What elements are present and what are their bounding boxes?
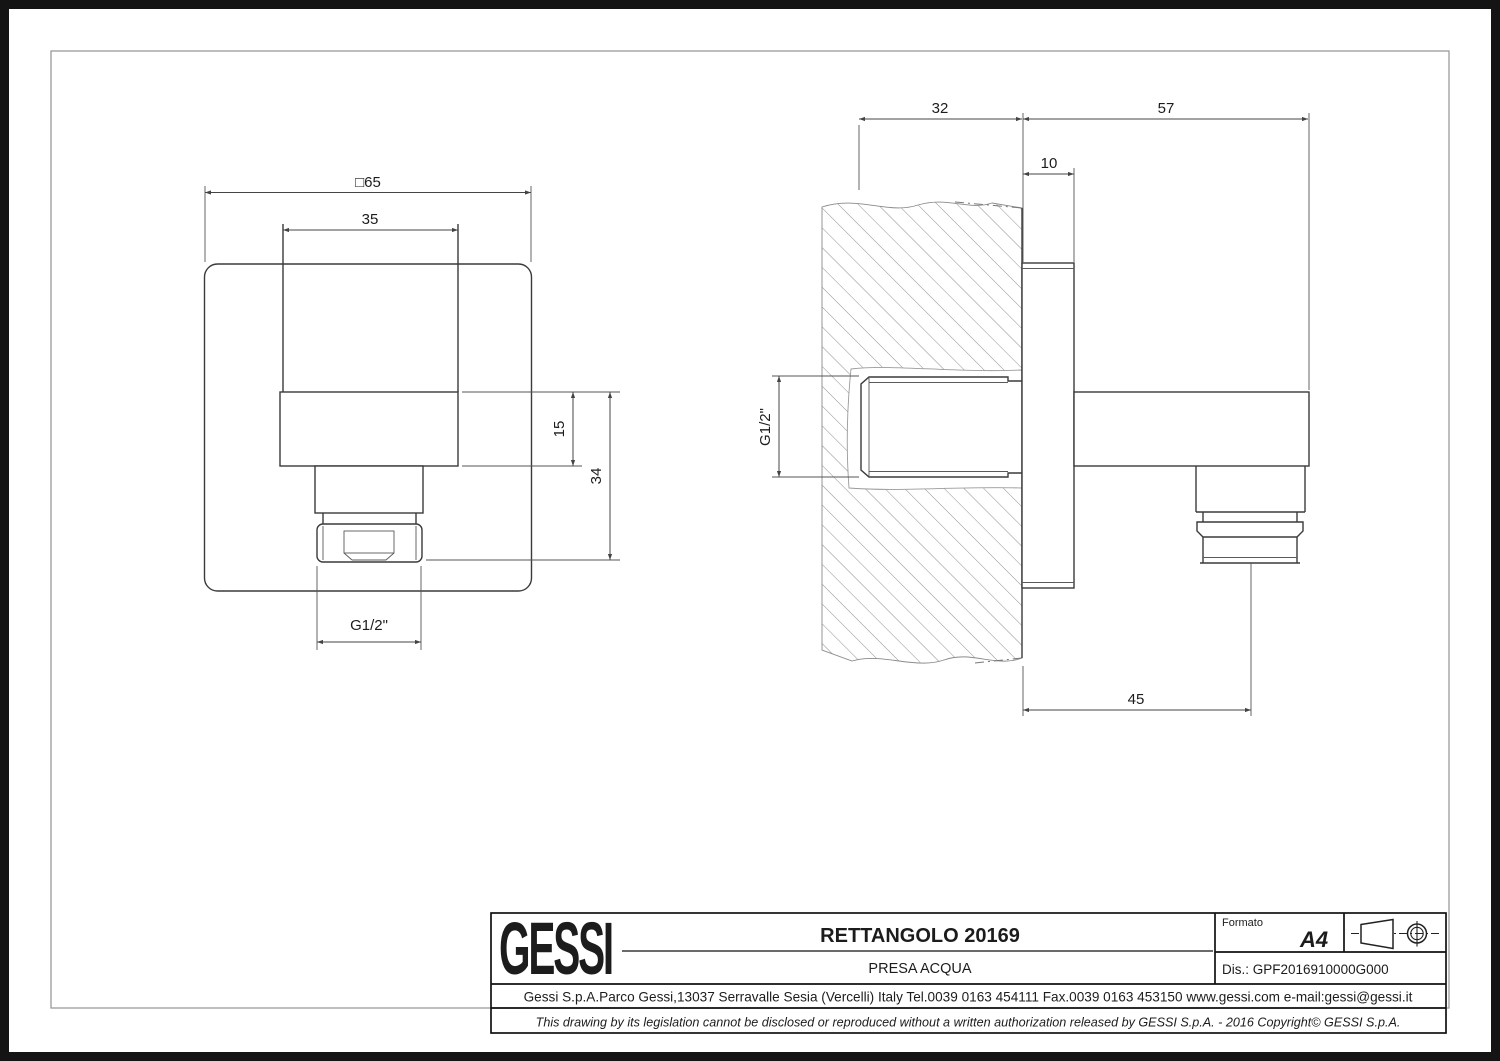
dim-plate-thickness-label: 10 [1041, 155, 1058, 172]
gessi-logo: GESSI [499, 907, 612, 990]
svg-text:GESSI: GESSI [499, 907, 612, 990]
company-address: Gessi S.p.A.Parco Gessi,13037 Serravalle… [524, 990, 1413, 1005]
dim-band-height-label: 15 [551, 421, 568, 438]
dim-body-width-label: 35 [362, 211, 379, 228]
legal-disclaimer: This drawing by its legislation cannot b… [536, 1016, 1401, 1030]
format-value: A4 [1299, 927, 1328, 952]
dim-front-thread-label: G1/2" [350, 617, 388, 634]
title-block: GESSI RETTANGOLO 20169 PRESA ACQUA Forma… [491, 907, 1446, 1033]
hose-nut-front [317, 524, 422, 562]
drawing-number: Dis.: GPF2016910000G000 [1222, 962, 1389, 977]
format-label: Formato [1222, 917, 1263, 929]
outlet-collar [1197, 522, 1303, 537]
side-section-view: 32 57 10 G1/2" 45 [757, 100, 1309, 716]
drawing-title: RETTANGOLO 20169 [820, 925, 1020, 947]
drawing-sheet: □65 35 15 34 G1/2" [0, 0, 1500, 1061]
dim-side-thread-label: G1/2" [757, 408, 774, 446]
dim-outlet-offset-label: 45 [1128, 691, 1145, 708]
front-view-part [205, 224, 532, 591]
front-view: □65 35 15 34 G1/2" [205, 174, 621, 650]
dim-total-height-label: 34 [588, 468, 605, 485]
dim-wall-depth-label: 32 [932, 100, 949, 117]
inlet-nipple-section [861, 377, 1022, 477]
dim-plate-width-label: □65 [355, 174, 381, 191]
drawing-subtitle: PRESA ACQUA [868, 961, 971, 977]
spout-body-section [1074, 392, 1309, 466]
technical-drawing: □65 35 15 34 G1/2" [0, 0, 1500, 1061]
wall-plate-section [1022, 263, 1074, 588]
spout-neck-front [315, 466, 423, 513]
dim-projection-label: 57 [1158, 100, 1175, 117]
spout-band-front [280, 392, 458, 466]
projection-symbol-icon [1351, 920, 1441, 949]
